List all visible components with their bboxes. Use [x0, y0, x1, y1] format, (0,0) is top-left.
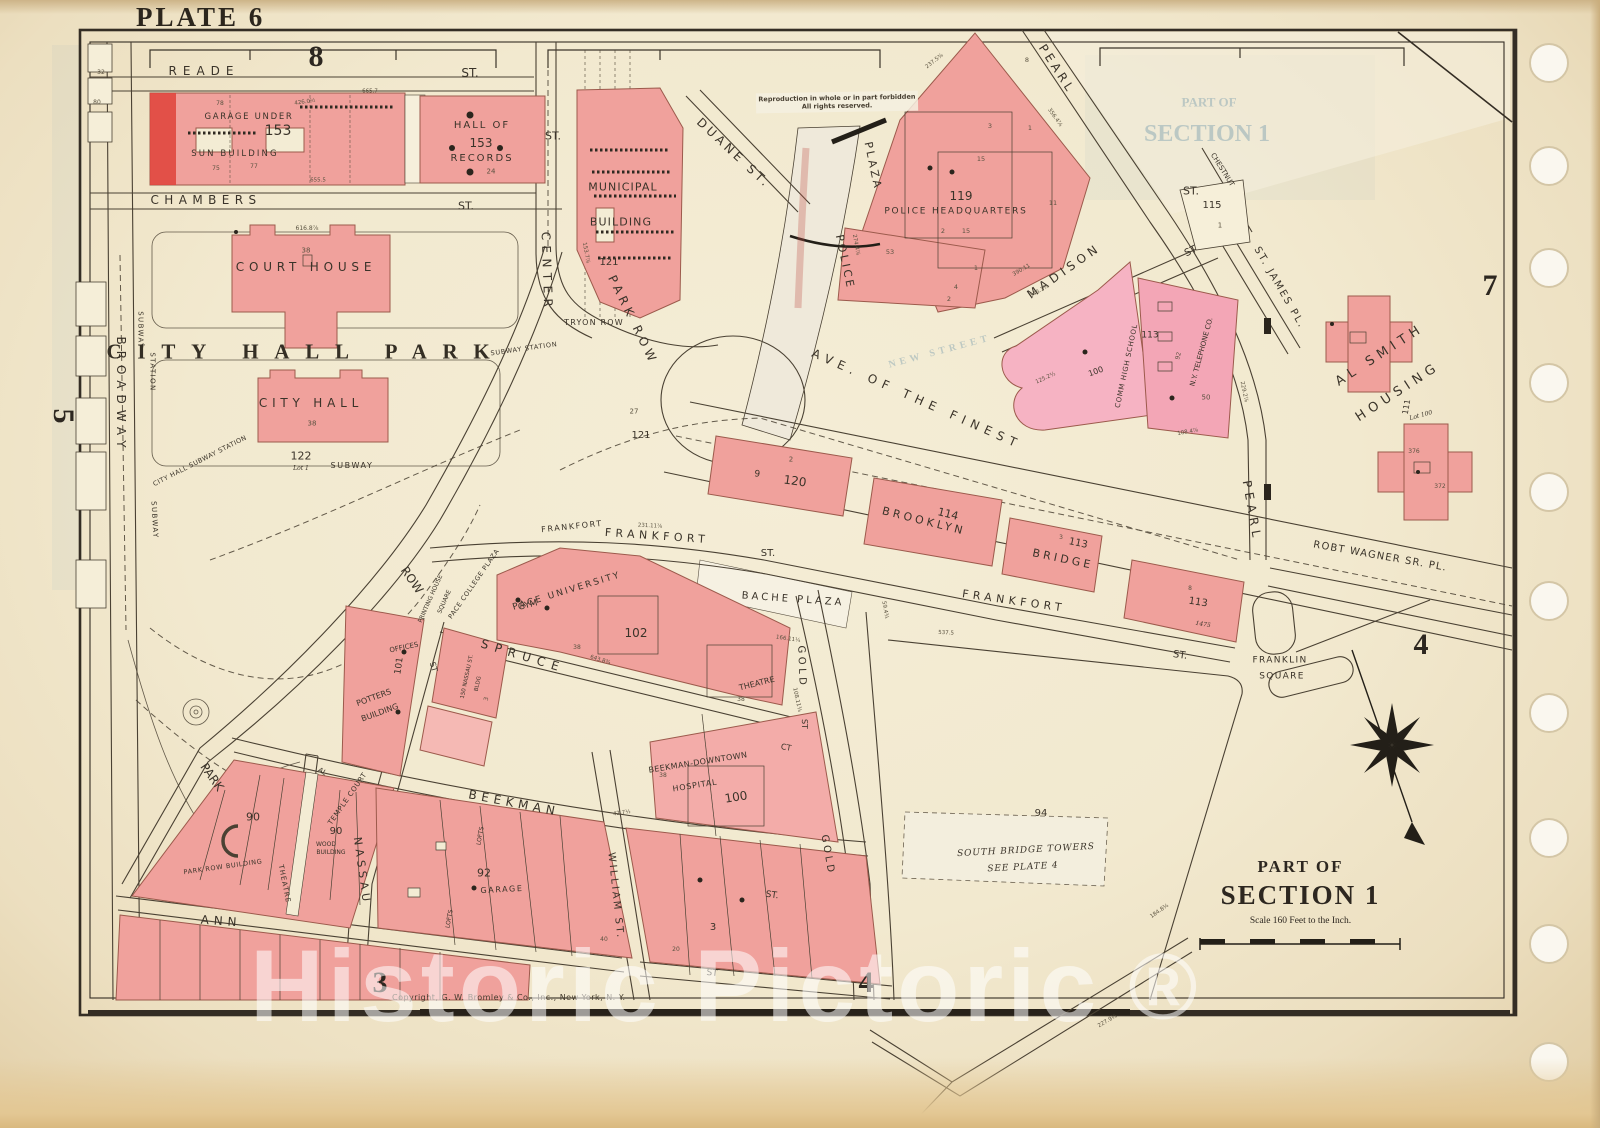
building-115: [1180, 180, 1250, 250]
plate-title: PLATE 6: [136, 2, 265, 33]
section-part-of: PART OF: [1198, 857, 1403, 877]
watermark-registered-icon: ®: [1128, 934, 1201, 1039]
paper-edge-right: [1590, 0, 1600, 1128]
watermark-text: Historic Pictoric: [250, 929, 1100, 1043]
building-municipal: [577, 88, 683, 318]
perforation-holes: [1530, 44, 1568, 1081]
building-block-113b: [1124, 560, 1244, 642]
scale-bar: [1200, 938, 1400, 950]
atlas-page: 875434READEST.CHAMBERSST.BROADWAYSUBWAYS…: [0, 0, 1600, 1128]
paper-edge-bottom: [0, 1058, 1600, 1128]
building-block-120: [708, 436, 852, 516]
building-hall-of-records: [420, 96, 545, 183]
compass-rose: [1350, 650, 1434, 845]
building-city-hall: [258, 370, 388, 442]
watermark: Historic Pictoric®: [250, 928, 1202, 1045]
building-block-113a: [1002, 518, 1102, 592]
reproduction-notice: Reproduction in whole or in part forbidd…: [756, 91, 918, 114]
section-title: SECTION 1: [1198, 880, 1403, 911]
section-title-box: PART OF SECTION 1 Scale 160 Feet to the …: [1198, 857, 1403, 926]
building-ny-telephone: [1138, 278, 1238, 438]
south-bridge-towers-area: [902, 812, 1108, 886]
building-block-101: [342, 606, 424, 776]
section-scale-note: Scale 160 Feet to the Inch.: [1198, 916, 1403, 926]
building-al-smith-housing: [1326, 296, 1472, 520]
building-block-114: [864, 478, 1002, 566]
red-accent-lot: [150, 93, 176, 185]
building-court-house: [232, 225, 390, 348]
